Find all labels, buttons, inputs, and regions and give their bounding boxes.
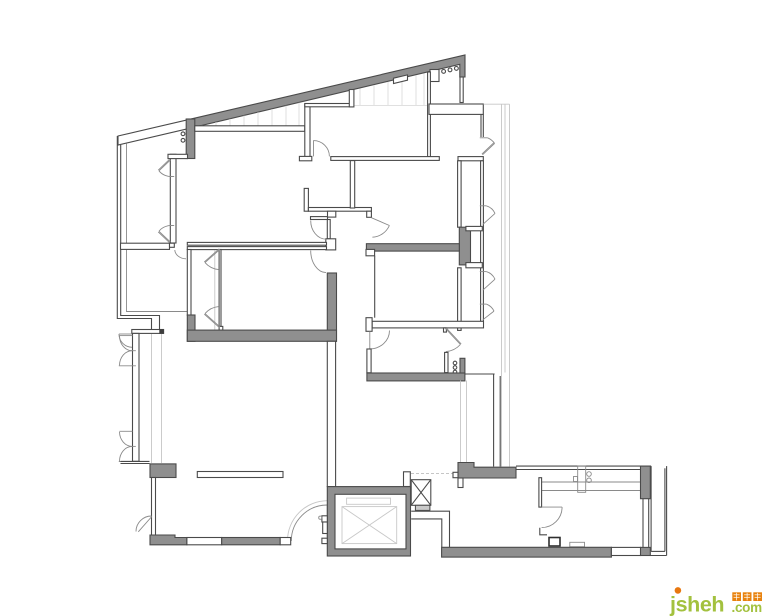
svg-text:.com: .com <box>732 600 763 615</box>
svg-text:jsheh: jsheh <box>669 593 724 616</box>
